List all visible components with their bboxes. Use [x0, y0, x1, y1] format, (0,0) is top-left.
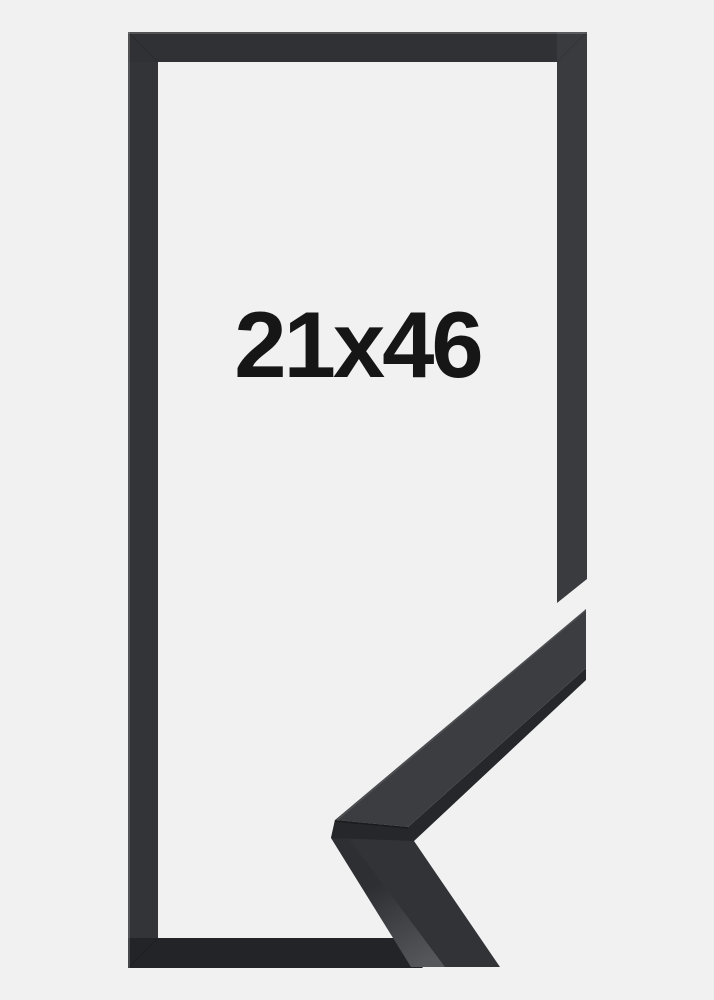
product-photo: 21x46: [0, 0, 714, 1000]
corner-sample: [331, 609, 586, 967]
frame-left-bar: [128, 32, 158, 968]
frame-graphic: [0, 0, 714, 1000]
frame-bottom-bar: [128, 938, 423, 968]
frame-size-label: 21x46: [128, 296, 587, 395]
frame-top-bar: [128, 32, 587, 62]
